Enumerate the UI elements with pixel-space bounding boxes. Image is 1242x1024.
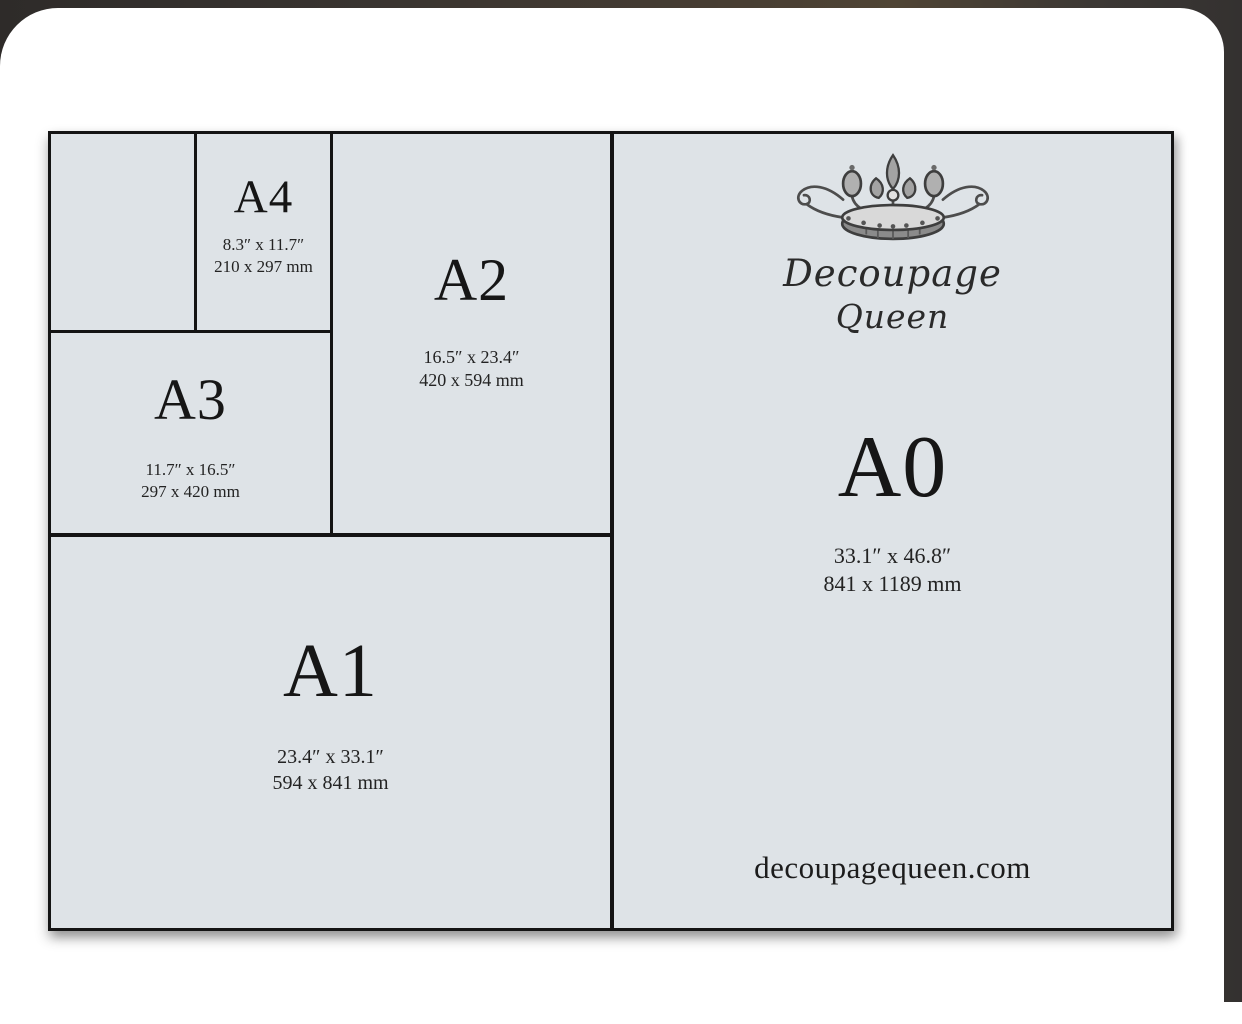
a1-inches: 23.4″ x 33.1″: [272, 745, 388, 771]
photo-card: A4 8.3″ x 11.7″ 210 x 297 mm A2 16.5″ x …: [0, 8, 1224, 1002]
a3-mm: 297 x 420 mm: [141, 481, 240, 503]
a3-size-label: A3: [154, 371, 227, 429]
panel-a1: A1 23.4″ x 33.1″ 594 x 841 mm: [51, 537, 610, 1024]
a4-mm: 210 x 297 mm: [214, 256, 313, 278]
crown-icon: [786, 148, 1000, 246]
panel-a3: A3 11.7″ x 16.5″ 297 x 420 mm: [51, 333, 330, 571]
brand-name-line2: Queen: [836, 297, 950, 336]
a1-size-label: A1: [283, 633, 378, 709]
backdrop-right-edge: [1224, 0, 1242, 1002]
empty-panel: [51, 134, 194, 330]
paper-size-diagram: A4 8.3″ x 11.7″ 210 x 297 mm A2 16.5″ x …: [48, 131, 1174, 931]
a2-inches: 16.5″ x 23.4″: [419, 346, 524, 369]
brand-name-line1: Decoupage: [783, 252, 1002, 295]
a0-inches: 33.1″ x 46.8″: [824, 542, 962, 570]
a4-inches: 8.3″ x 11.7″: [214, 234, 313, 256]
a2-mm: 420 x 594 mm: [419, 369, 524, 392]
a0-mm: 841 x 1189 mm: [824, 570, 962, 598]
website-url: decoupagequeen.com: [614, 850, 1171, 886]
a4-size-label: A4: [234, 174, 293, 221]
panel-a0: Decoupage Queen A0 33.1″ x 46.8″ 841 x 1…: [614, 134, 1171, 928]
a2-size-label: A2: [434, 250, 509, 310]
a0-size-label: A0: [838, 424, 948, 512]
a3-inches: 11.7″ x 16.5″: [141, 459, 240, 481]
a1-mm: 594 x 841 mm: [272, 771, 388, 797]
